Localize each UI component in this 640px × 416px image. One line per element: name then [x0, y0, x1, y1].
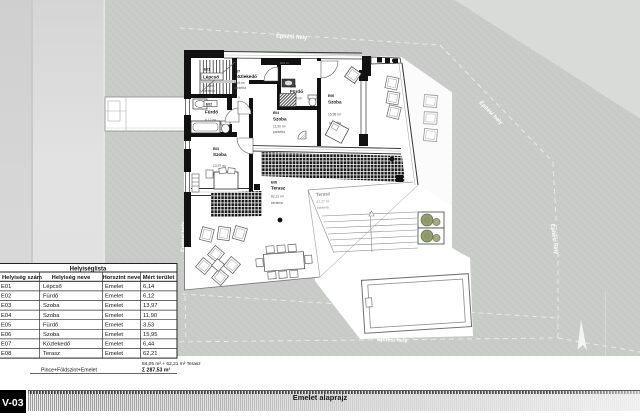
svg-text:6,44: 6,44: [143, 342, 155, 348]
svg-text:Emelet: Emelet: [105, 351, 123, 357]
svg-text:kerámia: kerámia: [203, 89, 215, 93]
svg-text:Közlekedő: Közlekedő: [234, 74, 257, 79]
svg-text:3,53: 3,53: [143, 322, 154, 328]
svg-text:Lépcső: Lépcső: [203, 75, 219, 80]
svg-text:Emelet: Emelet: [105, 322, 123, 328]
svg-text:Szoba: Szoba: [43, 303, 60, 309]
svg-text:Fürdő: Fürdő: [43, 322, 58, 328]
svg-text:E03: E03: [1, 303, 11, 309]
svg-text:11,90: 11,90: [143, 313, 157, 319]
svg-text:Σ 287,53 m²: Σ 287,53 m²: [142, 368, 170, 374]
svg-text:E06: E06: [1, 332, 11, 338]
svg-text:Mért terület: Mért terület: [143, 275, 175, 281]
svg-text:6,14: 6,14: [143, 284, 155, 290]
svg-text:Szoba: Szoba: [43, 313, 60, 319]
svg-text:Szoba: Szoba: [43, 332, 60, 338]
svg-text:15,95 m²: 15,95 m²: [328, 113, 342, 117]
svg-text:Pince+Földszint+Emelet: Pince+Földszint+Emelet: [41, 368, 97, 374]
svg-text:Emelet: Emelet: [105, 294, 123, 300]
svg-text:Emelet: Emelet: [105, 342, 123, 348]
svg-text:Szoba: Szoba: [328, 100, 342, 105]
svg-text:E04: E04: [273, 111, 279, 115]
svg-text:6,44 m²: 6,44 m²: [234, 81, 246, 85]
svg-text:Fürdő: Fürdő: [43, 294, 58, 300]
svg-text:13,97: 13,97: [143, 303, 158, 309]
svg-text:Lépcső: Lépcső: [43, 284, 62, 290]
svg-text:11,90 m²: 11,90 m²: [273, 125, 287, 129]
svg-text:E02: E02: [206, 102, 212, 106]
svg-text:Terasz: Terasz: [271, 186, 286, 191]
svg-text:6,12: 6,12: [143, 294, 154, 300]
svg-text:62,21 m²: 62,21 m²: [271, 195, 285, 199]
svg-text:Emelet alaprajz: Emelet alaprajz: [293, 393, 348, 402]
svg-text:Szoba: Szoba: [213, 152, 227, 157]
svg-text:kerámia: kerámia: [271, 201, 283, 205]
svg-text:E05: E05: [1, 322, 11, 328]
svg-text:Terasz: Terasz: [43, 351, 60, 357]
svg-text:E02: E02: [1, 294, 11, 300]
svg-text:Horszint neve: Horszint neve: [102, 275, 141, 281]
svg-text:E08: E08: [1, 351, 11, 357]
svg-text:Terasz: Terasz: [316, 191, 331, 197]
svg-text:parketta: parketta: [273, 130, 285, 134]
svg-text:E04: E04: [1, 313, 12, 319]
svg-text:E01: E01: [204, 68, 210, 72]
svg-text:6,14 m²: 6,14 m²: [203, 84, 215, 88]
svg-text:E08: E08: [271, 181, 277, 185]
svg-text:84,05 m² + 62,21 m² Terasz: 84,05 m² + 62,21 m² Terasz: [142, 361, 201, 367]
svg-text:Emelet: Emelet: [105, 332, 123, 338]
svg-text:62,21: 62,21: [143, 351, 158, 357]
svg-text:E07: E07: [1, 342, 11, 348]
svg-text:Helyiség neve: Helyiség neve: [52, 275, 91, 281]
svg-text:Fürdő: Fürdő: [205, 110, 218, 115]
svg-text:E03: E03: [213, 147, 219, 151]
svg-text:Helyiség szám: Helyiség szám: [2, 275, 42, 281]
svg-text:Közlekedő: Közlekedő: [43, 342, 70, 348]
svg-text:kerámia: kerámia: [317, 205, 329, 210]
svg-text:90/2,10: 90/2,10: [280, 61, 289, 65]
svg-text:Emelet: Emelet: [105, 303, 123, 309]
svg-text:E06: E06: [328, 94, 334, 98]
svg-text:V-03: V-03: [2, 397, 24, 409]
svg-text:Emelet: Emelet: [105, 284, 123, 290]
svg-text:Emelet: Emelet: [105, 313, 123, 319]
svg-text:E01: E01: [1, 284, 11, 290]
svg-text:15,95: 15,95: [143, 332, 158, 338]
svg-text:Szoba: Szoba: [273, 117, 287, 122]
svg-text:parketta: parketta: [234, 86, 246, 90]
